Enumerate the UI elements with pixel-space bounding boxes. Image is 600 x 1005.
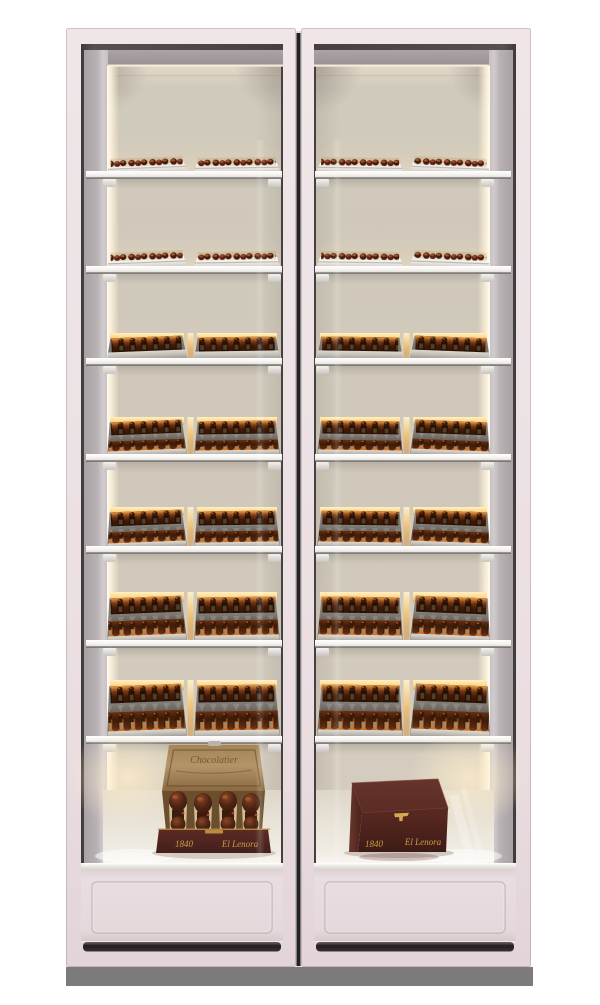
svg-text:El Lenora: El Lenora (404, 837, 442, 847)
svg-text:1840: 1840 (175, 839, 194, 849)
svg-text:Chocolatier: Chocolatier (190, 755, 238, 766)
svg-text:El Lenora: El Lenora (221, 839, 259, 849)
svg-text:1840: 1840 (365, 839, 384, 849)
